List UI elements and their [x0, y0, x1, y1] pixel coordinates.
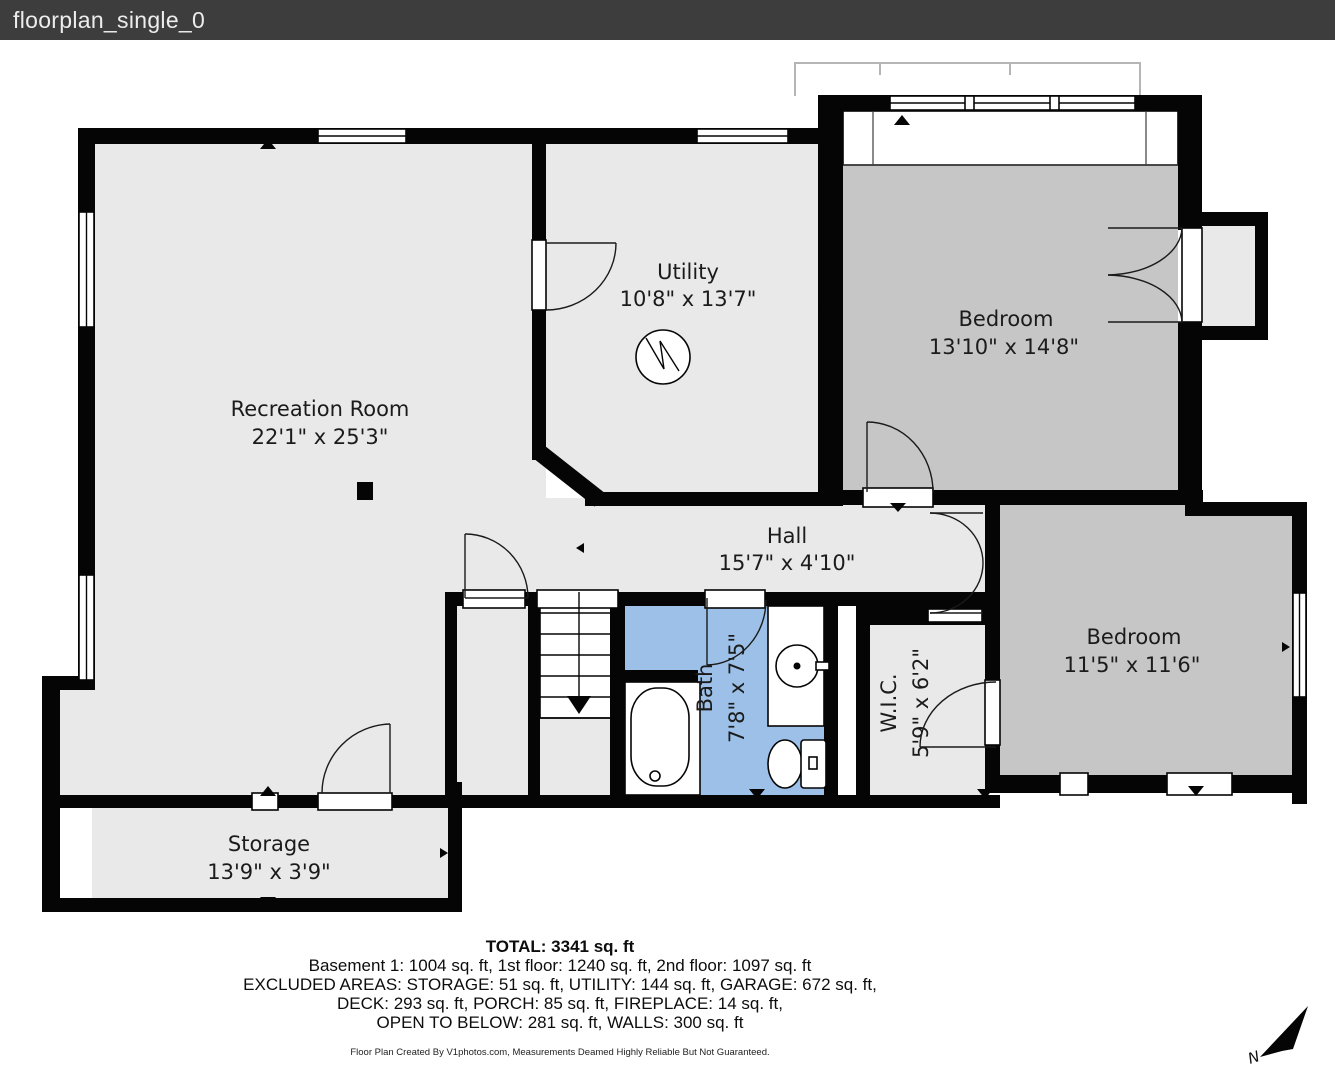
label-recreation-dims: 22'1" x 25'3"	[252, 425, 389, 449]
floorplan-canvas: Recreation Room 22'1" x 25'3" Utility 10…	[0, 0, 1335, 1080]
label-utility-dims: 10'8" x 13'7"	[620, 287, 757, 311]
summary-line-3: DECK: 293 sq. ft, PORCH: 85 sq. ft, FIRE…	[337, 994, 783, 1013]
window-utility-top	[697, 129, 788, 143]
window-bedroom2-right	[1293, 593, 1306, 697]
tub-drain	[650, 771, 660, 781]
bedroom1-bay	[843, 111, 1178, 165]
label-wic-name: W.I.C.	[877, 673, 901, 732]
bathtub-icon	[631, 688, 689, 786]
compass-arrow-icon	[1260, 1006, 1308, 1057]
title-bar: floorplan_single_0	[0, 0, 1335, 40]
summary-line-1: Basement 1: 1004 sq. ft, 1st floor: 1240…	[309, 956, 812, 975]
window-band-bedroom1	[890, 96, 1135, 110]
compass-north-label: N	[1246, 1047, 1262, 1068]
summary-total: TOTAL: 3341 sq. ft	[486, 937, 635, 956]
label-recreation-name: Recreation Room	[231, 397, 410, 421]
label-bedroom2-dims: 11'5" x 11'6"	[1064, 653, 1201, 677]
water-heater-icon	[636, 330, 690, 384]
summary-block: TOTAL: 3341 sq. ft Basement 1: 1004 sq. …	[243, 937, 877, 1058]
label-storage-dims: 13'9" x 3'9"	[207, 860, 330, 884]
label-bedroom1-dims: 13'10" x 14'8"	[929, 335, 1079, 359]
label-storage-name: Storage	[228, 832, 310, 856]
label-utility-name: Utility	[657, 260, 719, 284]
label-bath-name: Bath	[693, 664, 717, 713]
label-hall-dims: 15'7" x 4'10"	[719, 551, 856, 575]
bedroom1-closet-floor	[1202, 226, 1255, 326]
utility-room-floor	[546, 144, 818, 492]
label-bedroom2-name: Bedroom	[1087, 625, 1182, 649]
label-bedroom1-name: Bedroom	[959, 307, 1054, 331]
window-rec-left-2	[79, 575, 94, 680]
window-title: floorplan_single_0	[13, 7, 205, 34]
floorplan-viewer: floorplan_single_0	[0, 0, 1335, 1080]
understair-closet-floor	[457, 598, 528, 795]
label-hall-name: Hall	[767, 524, 807, 548]
label-bath-dims: 7'8" x 7'5"	[725, 633, 749, 743]
deck-outline	[795, 63, 1140, 96]
compass: N	[1246, 1006, 1308, 1068]
toilet-bowl-icon	[768, 740, 802, 788]
window-rec-top	[318, 129, 406, 143]
summary-line-2: EXCLUDED AREAS: STORAGE: 51 sq. ft, UTIL…	[243, 975, 877, 994]
window-rec-left-1	[79, 212, 94, 327]
sink-faucet	[816, 662, 829, 670]
summary-line-4: OPEN TO BELOW: 281 sq. ft, WALLS: 300 sq…	[377, 1013, 744, 1032]
support-post	[357, 482, 373, 500]
label-wic-dims: 5'9" x 6'2"	[909, 648, 933, 758]
footer-disclaimer: Floor Plan Created By V1photos.com, Meas…	[350, 1047, 769, 1058]
